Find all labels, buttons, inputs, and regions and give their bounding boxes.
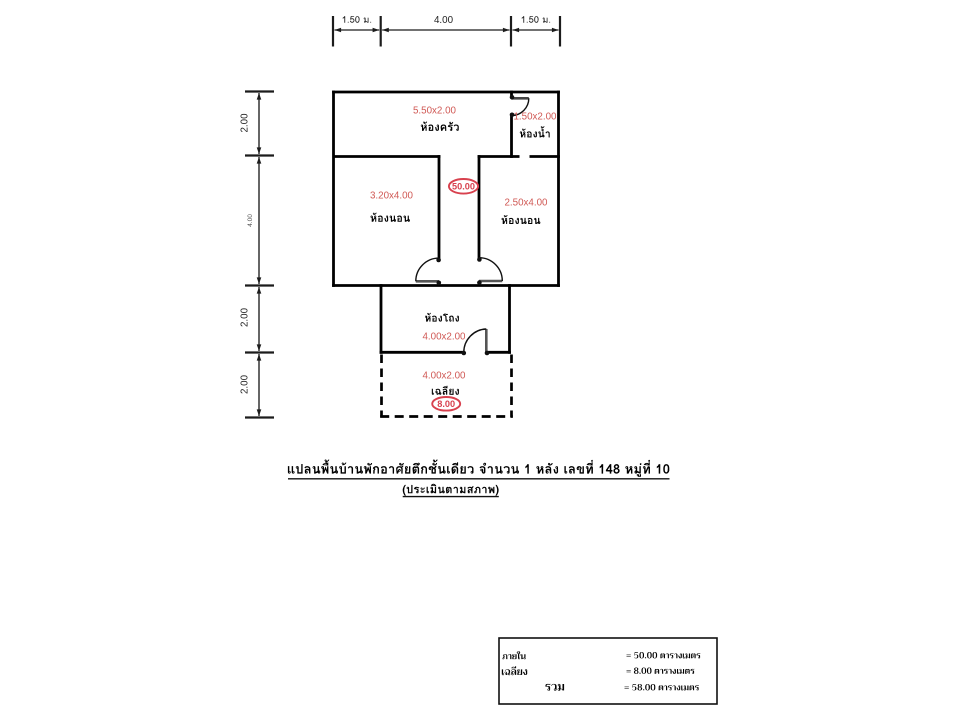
svg-text:3.20x4.00: 3.20x4.00 bbox=[370, 190, 414, 201]
svg-text:5.50x2.00: 5.50x2.00 bbox=[413, 105, 457, 116]
svg-text:4.00: 4.00 bbox=[247, 214, 254, 227]
svg-text:2.00: 2.00 bbox=[240, 374, 251, 394]
svg-text:4.00x2.00: 4.00x2.00 bbox=[422, 370, 466, 381]
svg-text:2.00: 2.00 bbox=[240, 113, 251, 133]
svg-text:1.50x2.00: 1.50x2.00 bbox=[513, 111, 557, 122]
svg-text:8.00: 8.00 bbox=[437, 399, 455, 409]
svg-text:2.50x4.00: 2.50x4.00 bbox=[504, 197, 548, 208]
svg-text:4.00: 4.00 bbox=[434, 15, 454, 26]
svg-text:50.00: 50.00 bbox=[452, 182, 475, 192]
svg-text:2.00: 2.00 bbox=[240, 307, 251, 327]
svg-text:4.00x2.00: 4.00x2.00 bbox=[422, 331, 466, 342]
